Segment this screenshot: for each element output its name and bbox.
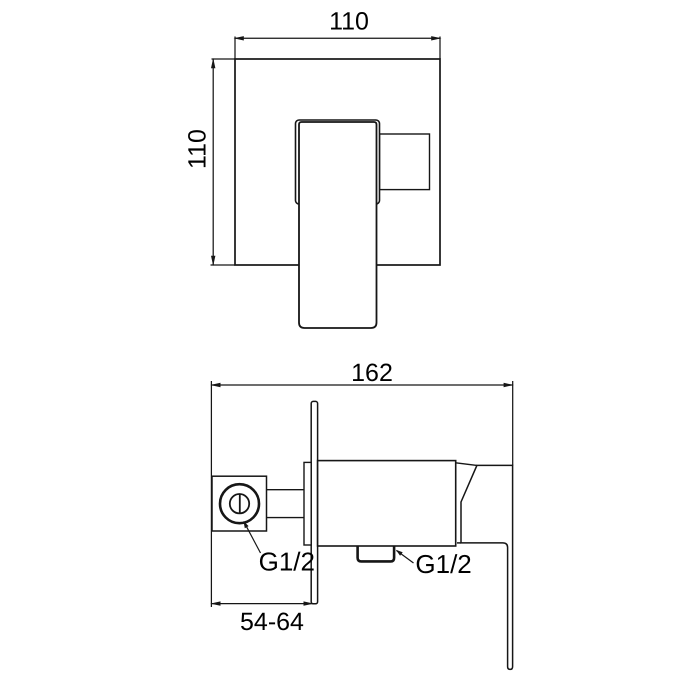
- svg-text:54-64: 54-64: [240, 608, 304, 636]
- svg-text:110: 110: [329, 8, 369, 36]
- svg-text:G1/2: G1/2: [415, 549, 471, 579]
- svg-text:110: 110: [184, 129, 212, 169]
- svg-text:162: 162: [351, 359, 393, 387]
- svg-text:G1/2: G1/2: [259, 547, 315, 577]
